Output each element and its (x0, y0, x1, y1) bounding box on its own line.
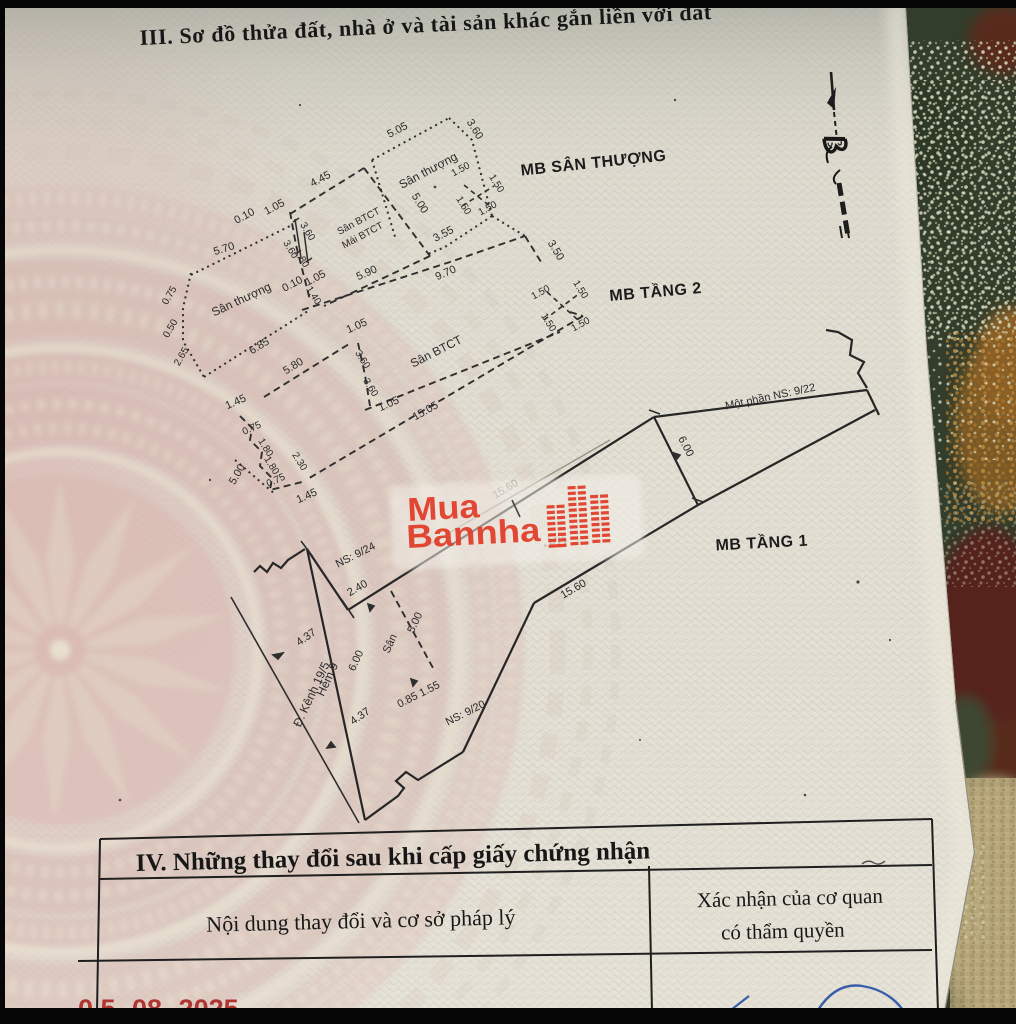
svg-text:Bannha: Bannha (405, 511, 541, 555)
svg-text:có thẩm quyền: có thẩm quyền (721, 917, 846, 944)
svg-text:Xác nhận của cơ quan: Xác nhận của cơ quan (697, 884, 884, 913)
